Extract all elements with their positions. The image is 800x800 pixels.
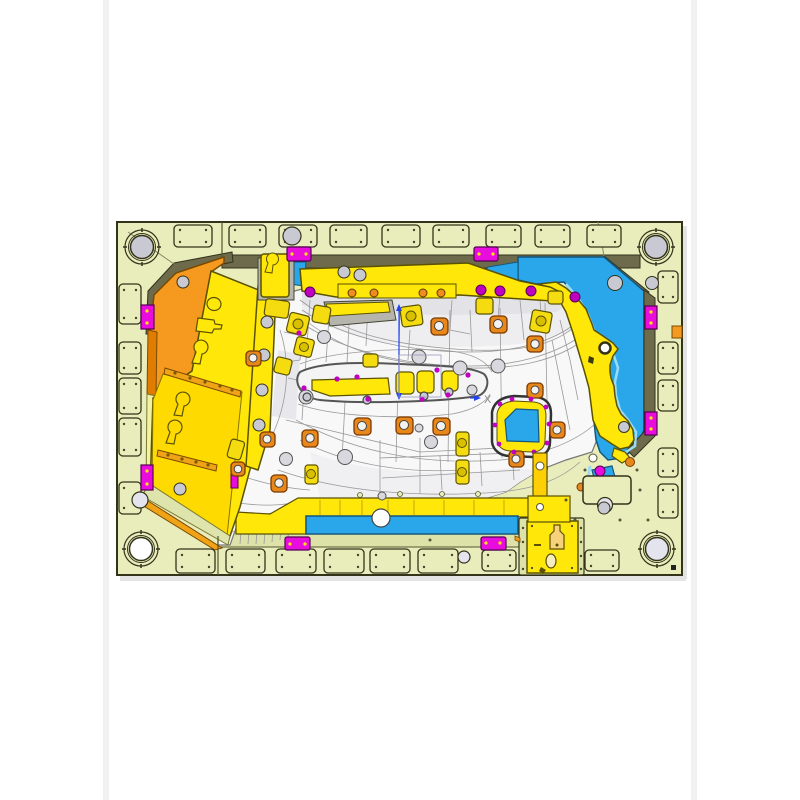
svg-text:X: X [484, 394, 492, 406]
